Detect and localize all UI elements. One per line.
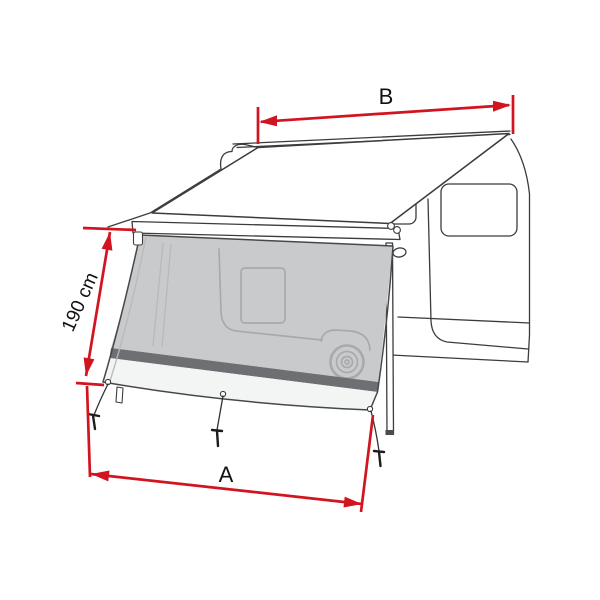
- support-leg-foot: [386, 430, 395, 435]
- caravan-right-edge: [511, 139, 530, 362]
- sun-block-mesh-panel: [103, 235, 393, 412]
- hem-eyelet-right: [367, 406, 372, 411]
- dimension-height-tick-bottom: [76, 383, 104, 385]
- dimension-height-extension: [87, 386, 90, 477]
- tension-peg-right: [374, 451, 384, 466]
- label-dimension-b: B: [379, 84, 394, 109]
- awning-dimension-diagram: B A 190 cm: [0, 0, 600, 600]
- diagram-svg: B A 190 cm: [0, 0, 600, 600]
- caravan-skirt-line: [398, 317, 530, 323]
- dimension-a-extension-right: [361, 415, 373, 512]
- guy-rope-center: [217, 396, 223, 430]
- lead-bar-left-bracket: [134, 232, 143, 245]
- caravan-handle-oval: [392, 247, 406, 258]
- mesh-strap-tab: [116, 387, 123, 403]
- dimension-height-tick-top: [83, 228, 136, 230]
- caravan-side-window: [441, 184, 517, 236]
- caravan-bottom-edge: [391, 355, 528, 362]
- label-dimension-height: 190 cm: [58, 269, 103, 334]
- arrowhead-a-right: [344, 497, 363, 508]
- tension-peg-center: [212, 430, 222, 446]
- guy-rope-left: [94, 384, 108, 415]
- arrowhead-a-left: [91, 471, 110, 482]
- lead-bar-right-knuckle-1: [388, 223, 395, 230]
- label-dimension-a: A: [219, 462, 234, 487]
- lead-bar-right-knuckle-2: [394, 227, 401, 234]
